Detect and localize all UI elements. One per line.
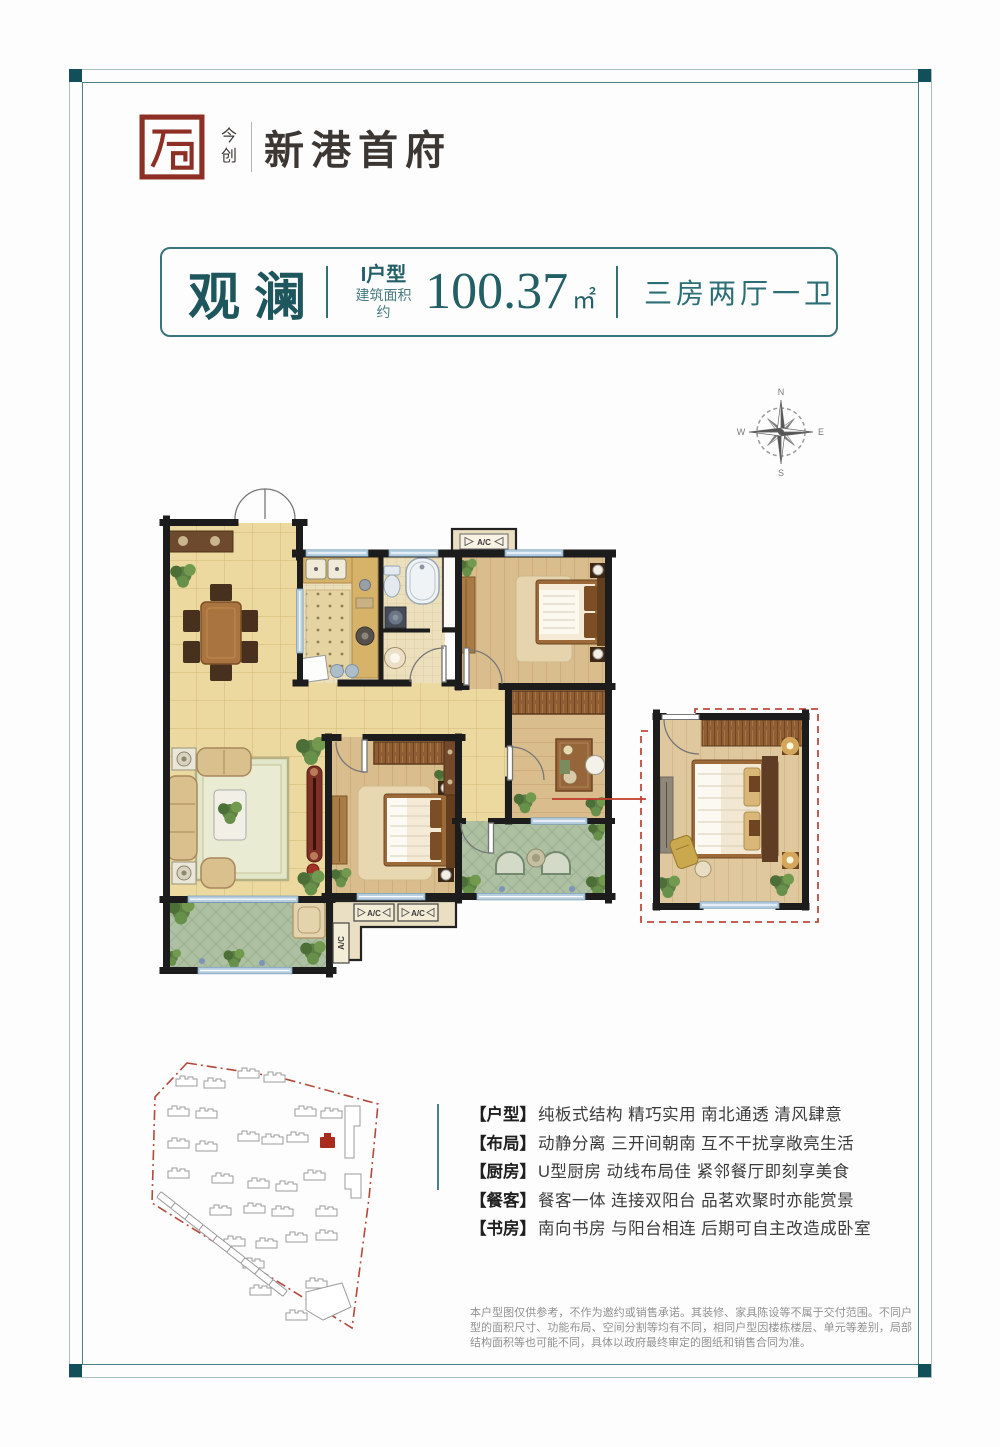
rooms-summary: 三房两厅一卫 — [644, 272, 836, 312]
brand-seal-icon — [139, 114, 205, 180]
kitchen — [299, 556, 378, 683]
brand-logo: 今创 新港首府 — [139, 114, 452, 180]
area-value: 100.37 — [425, 266, 568, 318]
ac-label: A/C — [411, 909, 425, 918]
feature-list: 【户型】 纯板式结构 精巧实用 南北通透 清风肆意 【布局】 动静分离 三开间朝… — [470, 1106, 910, 1249]
compass-east-label: E — [818, 427, 824, 437]
feature-row: 【厨房】 U型厨房 动线布局佳 紧邻餐厅即刻享美食 — [470, 1163, 910, 1182]
ac-label: A/C — [337, 936, 346, 950]
floorplan-poster: 今创 新港首府 观澜 I户型 建筑面积约 100.37 ㎡ 三房两厅一卫 — [0, 0, 1000, 1447]
disclaimer-text: 本户型图仅供参考，不作为邀约或销售承诺。其装修、家具陈设等不属于交付范围。不同户… — [470, 1306, 912, 1351]
unit-type-label: I户型 — [352, 264, 415, 287]
frame-corner-square — [69, 1364, 82, 1377]
area-block: 100.37 ㎡ — [425, 266, 596, 318]
ac-label: A/C — [477, 538, 491, 547]
feature-row: 【餐客】 餐客一体 连接双阳台 品茗欢聚时亦能赏景 — [470, 1192, 910, 1211]
unit-type-block: I户型 建筑面积约 — [352, 264, 415, 319]
area-prefix: 建筑面积约 — [352, 287, 415, 319]
feature-label: 【厨房】 — [470, 1163, 536, 1182]
compass-north-label: N — [778, 387, 785, 397]
feature-row: 【户型】 纯板式结构 精巧实用 南北通透 清风肆意 — [470, 1106, 910, 1125]
frame-corner-square — [69, 69, 82, 82]
compass-west-label: W — [737, 427, 746, 437]
feature-text: 纯板式结构 精巧实用 南北通透 清风肆意 — [538, 1106, 842, 1125]
compass-south-label: S — [778, 468, 784, 478]
feature-row: 【布局】 动静分离 三开间朝南 互不干扰享敞亮生活 — [470, 1135, 910, 1154]
feature-text: 南向书房 与阳台相连 后期可自主改造成卧室 — [538, 1220, 871, 1239]
logo-divider — [251, 122, 252, 172]
unit-title-box: 观澜 I户型 建筑面积约 100.37 ㎡ 三房两厅一卫 — [160, 247, 838, 337]
brand-subtitle: 今创 — [221, 127, 243, 167]
feature-text: U型厨房 动线布局佳 紧邻餐厅即刻享美食 — [538, 1163, 850, 1182]
feature-row: 【书房】 南向书房 与阳台相连 后期可自主改造成卧室 — [470, 1220, 910, 1239]
floor-plan: A/C A/C A/C A/C — [150, 480, 830, 990]
feature-text: 动静分离 三开间朝南 互不干扰享敞亮生活 — [538, 1135, 854, 1154]
frame-corner-square — [918, 69, 931, 82]
detail-bedroom — [641, 709, 818, 922]
site-map — [145, 1055, 455, 1380]
feature-text: 餐客一体 连接双阳台 品茗欢聚时亦能赏景 — [538, 1192, 854, 1211]
highlighted-building — [320, 1133, 335, 1148]
area-unit: ㎡ — [572, 280, 596, 315]
frame-corner-square — [918, 1364, 931, 1377]
feature-label: 【户型】 — [470, 1106, 536, 1125]
unit-name: 观澜 — [188, 255, 320, 330]
brand-name: 新港首府 — [264, 118, 452, 176]
features-divider — [437, 1104, 439, 1190]
feature-label: 【餐客】 — [470, 1192, 536, 1211]
feature-label: 【书房】 — [470, 1220, 536, 1239]
title-divider — [616, 266, 618, 318]
title-divider — [326, 266, 328, 318]
compass-icon: N E S W — [736, 386, 826, 478]
site-buildings — [157, 1068, 361, 1320]
feature-label: 【布局】 — [470, 1135, 536, 1154]
ac-label: A/C — [367, 909, 381, 918]
